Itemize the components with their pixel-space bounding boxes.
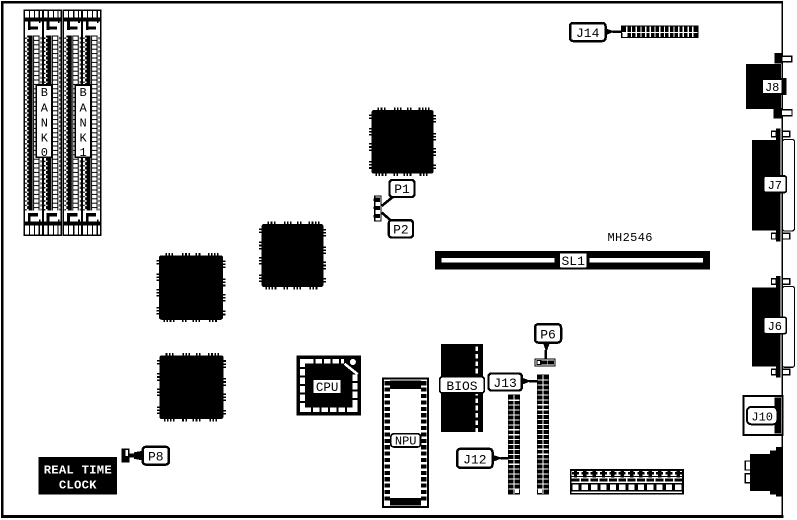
svg-text:P6: P6 [540,328,556,343]
svg-text:A: A [41,102,49,116]
svg-text:J7: J7 [768,179,782,193]
svg-text:N: N [79,117,86,131]
svg-text:CLOCK: CLOCK [59,479,97,493]
svg-text:A: A [79,102,87,116]
svg-text:SL1: SL1 [561,254,585,269]
svg-text:J8: J8 [765,81,779,95]
svg-text:NPU: NPU [395,435,417,449]
svg-text:J14: J14 [576,26,600,41]
svg-text:P2: P2 [393,223,409,238]
svg-text:MH2546: MH2546 [608,231,653,245]
svg-text:J12: J12 [463,452,486,467]
svg-text:B: B [79,86,86,100]
svg-text:CPU: CPU [316,381,339,395]
svg-text:J13: J13 [493,376,516,391]
svg-text:BIOS: BIOS [446,379,477,394]
svg-text:N: N [41,117,48,131]
svg-text:0: 0 [41,146,48,160]
svg-text:REAL TIME: REAL TIME [44,464,112,478]
svg-text:J10: J10 [751,411,773,425]
svg-text:K: K [41,132,49,146]
svg-text:P8: P8 [148,450,164,465]
svg-text:1: 1 [79,146,86,160]
svg-text:K: K [79,132,87,146]
svg-text:J6: J6 [768,320,782,334]
svg-text:B: B [41,86,48,100]
svg-text:P1: P1 [394,182,410,197]
